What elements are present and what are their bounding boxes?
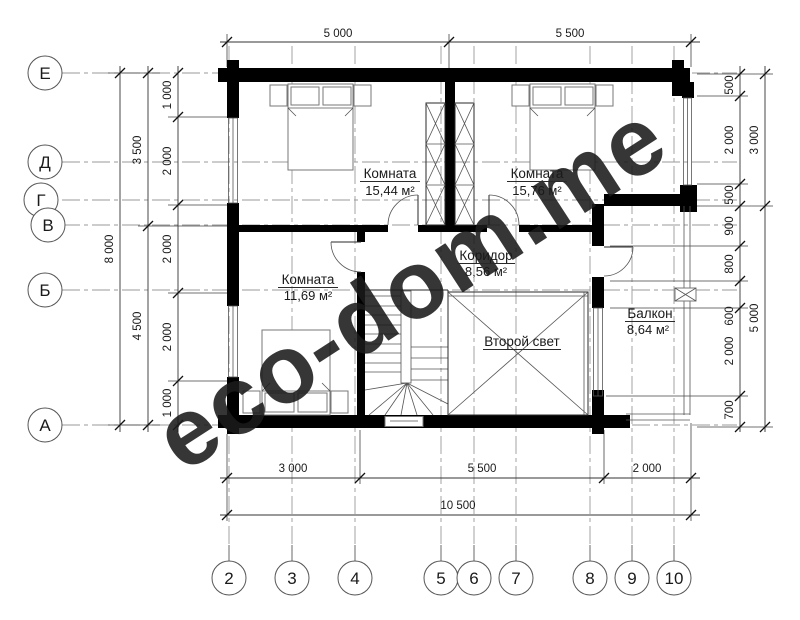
axis-row-bubbles: Е Д Г В Б А	[24, 56, 65, 442]
void-label: Второй свет	[484, 334, 559, 349]
dim-left-inner-1: 1 000	[162, 81, 174, 110]
dim-top-2: 5 500	[556, 28, 585, 40]
dim-bottom-2: 5 500	[468, 463, 497, 475]
dim-right-outer-2: 5 000	[749, 304, 761, 333]
door-bedroom-1	[388, 195, 418, 225]
axis-row-d: Д	[39, 153, 51, 172]
balcony-post-marker	[675, 288, 696, 301]
dim-left-total: 8 000	[104, 235, 116, 264]
axis-column-bubbles: 2 3 4 5 6 7 8 9 10	[212, 545, 691, 595]
room-3-label: Комната	[282, 272, 335, 287]
corridor-area: 8,56 м²	[465, 264, 508, 279]
dim-bottom-3: 2 000	[633, 463, 662, 475]
dim-left-inner-2: 2 000	[162, 147, 174, 176]
axis-row-e: Е	[39, 64, 50, 83]
balcony-label: Балкон	[627, 306, 672, 321]
dim-left-mid-2: 4 500	[132, 312, 144, 341]
room-2-label: Комната	[511, 166, 564, 181]
axis-col-9: 9	[627, 569, 636, 588]
room-2-area: 15,76 м²	[512, 183, 562, 198]
dim-right-outer-1: 3 000	[749, 126, 761, 155]
axis-col-4: 4	[350, 569, 359, 588]
window-west-upper	[229, 118, 238, 203]
dim-left-mid-1: 3 500	[132, 136, 144, 165]
dim-top-1: 5 000	[324, 28, 353, 40]
axis-col-6: 6	[469, 569, 478, 588]
bed-room-1	[270, 84, 371, 170]
axis-row-v: В	[42, 216, 53, 235]
axis-row-b: Б	[39, 281, 50, 300]
window-south-understair	[385, 417, 423, 427]
axis-col-8: 8	[585, 569, 594, 588]
room-1-area: 15,44 м²	[365, 183, 415, 198]
axis-row-a: А	[39, 416, 51, 435]
balcony-area: 8,64 м²	[627, 322, 670, 337]
room-3-area: 11,69 м²	[284, 288, 333, 303]
dim-right-inner-7: 2 000	[724, 337, 736, 366]
axis-row-g: Г	[36, 191, 45, 210]
axis-col-3: 3	[287, 569, 296, 588]
dim-bottom-1: 3 000	[279, 463, 308, 475]
dim-left-inner-5: 1 000	[162, 389, 174, 418]
dim-left-inner-3: 2 000	[162, 235, 174, 264]
axis-col-2: 2	[224, 569, 233, 588]
axis-col-7: 7	[511, 569, 520, 588]
dim-right-inner-8: 700	[724, 400, 736, 419]
dim-left-inner-4: 2 000	[162, 323, 174, 352]
dim-right-inner-6: 600	[724, 306, 736, 325]
dim-bottom-total: 10 500	[440, 500, 475, 512]
axis-col-5: 5	[436, 569, 445, 588]
dim-right-inner-3: 500	[724, 185, 736, 204]
window-east-main	[594, 308, 603, 396]
door-balcony	[604, 247, 633, 276]
dim-right-inner-5: 800	[724, 254, 736, 273]
axis-col-10: 10	[665, 569, 684, 588]
floor-plan-drawing: eco-dom.me Комната 15,44 м² Комната 15,7…	[0, 0, 800, 620]
dim-right-inner-4: 900	[724, 216, 736, 235]
corridor-label: Коридор	[459, 248, 512, 263]
dim-right-inner-1: 500	[724, 75, 736, 94]
floor-plan-sheet: eco-dom.me Комната 15,44 м² Комната 15,7…	[0, 0, 800, 620]
dim-right-inner-2: 2 000	[724, 126, 736, 155]
room-1-label: Комната	[364, 166, 417, 181]
